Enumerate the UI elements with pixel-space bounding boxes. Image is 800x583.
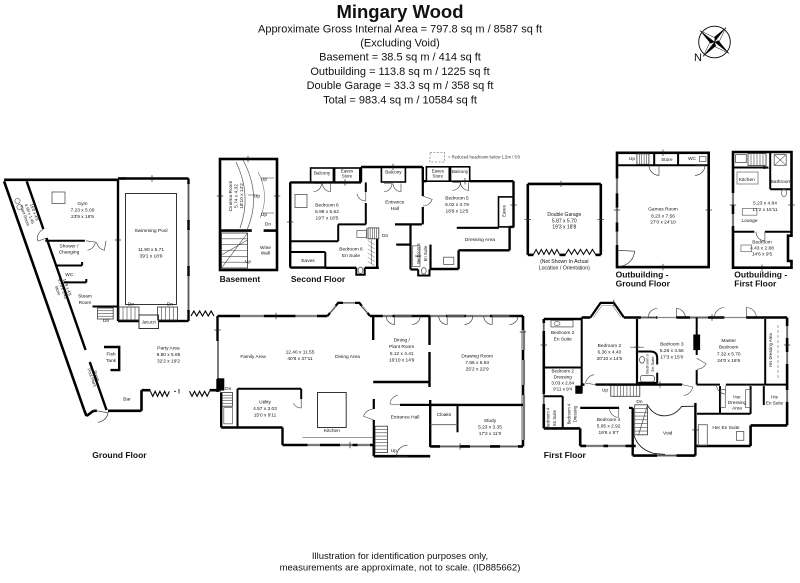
svg-text:17'2 x 11'0: 17'2 x 11'0 bbox=[479, 431, 502, 437]
svg-text:8.23 x 7.56: 8.23 x 7.56 bbox=[651, 213, 675, 219]
svg-text:Bedroom 4: Bedroom 4 bbox=[546, 407, 551, 428]
svg-text:Plant Room: Plant Room bbox=[389, 344, 414, 350]
svg-text:Up: Up bbox=[602, 388, 608, 394]
svg-text:Bedroom 2: Bedroom 2 bbox=[598, 343, 622, 349]
svg-text:12.40 x 11.55: 12.40 x 11.55 bbox=[286, 350, 315, 356]
svg-text:Dn: Dn bbox=[167, 302, 173, 308]
svg-text:Dn: Dn bbox=[636, 399, 642, 405]
svg-text:Kitchen: Kitchen bbox=[324, 428, 340, 434]
svg-text:En Suite: En Suite bbox=[552, 409, 557, 426]
svg-text:Cloaks: Cloaks bbox=[437, 412, 452, 418]
svg-text:6.02 x 3.79: 6.02 x 3.79 bbox=[445, 202, 469, 208]
svg-text:27'0 x 24'10: 27'0 x 24'10 bbox=[650, 220, 676, 226]
svg-text:Basement: Basement bbox=[220, 274, 261, 284]
svg-text:Her En Suite: Her En Suite bbox=[712, 425, 740, 431]
svg-text:Tank: Tank bbox=[106, 358, 117, 364]
svg-text:32'2 x 19'2: 32'2 x 19'2 bbox=[157, 359, 180, 365]
svg-text:Up: Up bbox=[261, 177, 267, 183]
svg-text:Location / Orientation): Location / Orientation) bbox=[539, 265, 590, 271]
svg-text:= Reduced headroom below 1.5m: = Reduced headroom below 1.5m / 5'0 bbox=[448, 155, 521, 160]
svg-text:5.26 x 4.56: 5.26 x 4.56 bbox=[660, 348, 684, 354]
svg-text:measurements are approximate,: measurements are approximate, not to sca… bbox=[280, 563, 521, 574]
svg-text:En Suite: En Suite bbox=[342, 253, 360, 259]
svg-text:Drawing Room: Drawing Room bbox=[461, 354, 493, 360]
svg-text:Shower /: Shower / bbox=[60, 244, 80, 250]
svg-text:Room: Room bbox=[79, 300, 92, 306]
svg-text:Store: Store bbox=[342, 174, 353, 179]
svg-text:En Suite: En Suite bbox=[766, 401, 784, 406]
svg-text:Bedroom: Bedroom bbox=[752, 240, 771, 246]
svg-text:5.23 x 3.35: 5.23 x 3.35 bbox=[478, 425, 502, 431]
svg-text:His Dressing Area: His Dressing Area bbox=[768, 333, 773, 367]
svg-text:Bedroom: Bedroom bbox=[719, 345, 738, 351]
svg-text:Bedroom 5: Bedroom 5 bbox=[445, 196, 469, 202]
svg-text:N: N bbox=[694, 52, 702, 64]
svg-text:7.66 x 6.93: 7.66 x 6.93 bbox=[465, 360, 489, 366]
svg-text:Bedroom 6: Bedroom 6 bbox=[339, 247, 363, 253]
svg-text:Steam: Steam bbox=[78, 294, 92, 300]
svg-text:Bedroom 4: Bedroom 4 bbox=[567, 403, 572, 424]
svg-text:Ground Floor: Ground Floor bbox=[616, 279, 671, 289]
svg-text:First Floor: First Floor bbox=[544, 450, 587, 460]
svg-text:Jacuzzi: Jacuzzi bbox=[142, 320, 156, 325]
svg-text:Lounge: Lounge bbox=[741, 218, 757, 224]
svg-text:Gym: Gym bbox=[77, 201, 87, 207]
svg-text:5.12 x 4.41: 5.12 x 4.41 bbox=[390, 351, 414, 357]
svg-text:7.32 x 5.70: 7.32 x 5.70 bbox=[717, 352, 741, 358]
svg-text:11.90 x 5.71: 11.90 x 5.71 bbox=[138, 247, 164, 253]
svg-text:24'0 x 16'6: 24'0 x 16'6 bbox=[717, 358, 740, 364]
svg-text:3.03 x 2.84: 3.03 x 2.84 bbox=[551, 381, 574, 386]
svg-text:17'3 x 15'0: 17'3 x 15'0 bbox=[660, 355, 683, 361]
svg-text:Store: Store bbox=[433, 174, 444, 179]
svg-text:Kitchen: Kitchen bbox=[739, 177, 755, 183]
svg-text:Her: Her bbox=[733, 395, 741, 400]
svg-text:4.57 x 3.03: 4.57 x 3.03 bbox=[253, 406, 277, 412]
svg-text:Bedroom 2: Bedroom 2 bbox=[551, 369, 574, 374]
svg-text:5.23 x 4.84: 5.23 x 4.84 bbox=[753, 201, 777, 207]
svg-text:Utility: Utility bbox=[259, 400, 271, 406]
svg-text:Dn: Dn bbox=[763, 165, 769, 171]
svg-text:39'1 x 18'9: 39'1 x 18'9 bbox=[140, 254, 163, 260]
svg-text:Hall: Hall bbox=[391, 206, 399, 212]
svg-text:19'6 x 9'7: 19'6 x 9'7 bbox=[598, 430, 619, 436]
svg-text:Dressing: Dressing bbox=[728, 400, 747, 405]
svg-text:Wall: Wall bbox=[261, 251, 270, 257]
svg-text:Cinema Room: Cinema Room bbox=[228, 181, 234, 212]
svg-text:Eaves: Eaves bbox=[502, 205, 507, 217]
svg-text:15'0 x 9'11: 15'0 x 9'11 bbox=[254, 413, 277, 419]
svg-text:Balcony: Balcony bbox=[314, 171, 331, 176]
svg-text:14'6 x 9'5: 14'6 x 9'5 bbox=[752, 252, 773, 258]
svg-text:Up: Up bbox=[261, 212, 267, 218]
svg-text:Entrance Hall: Entrance Hall bbox=[391, 415, 420, 421]
svg-text:Master: Master bbox=[721, 338, 736, 344]
svg-text:Dn: Dn bbox=[225, 386, 231, 392]
svg-text:Bedroom 3: Bedroom 3 bbox=[645, 353, 650, 373]
svg-text:17'2 x 15'11: 17'2 x 15'11 bbox=[752, 207, 778, 213]
svg-text:Fish: Fish bbox=[106, 352, 115, 358]
svg-text:4.43 x 2.88: 4.43 x 2.88 bbox=[750, 246, 774, 252]
svg-text:5.74 x 4.32: 5.74 x 4.32 bbox=[234, 184, 240, 208]
svg-text:(Not Shown In Actual: (Not Shown In Actual bbox=[540, 259, 588, 265]
svg-text:Outbuilding = 113.8 sq m / 122: Outbuilding = 113.8 sq m / 1225 sq ft bbox=[310, 66, 489, 78]
svg-text:Dining Area: Dining Area bbox=[335, 354, 360, 360]
svg-text:Study: Study bbox=[484, 418, 497, 424]
svg-text:Party Area: Party Area bbox=[157, 346, 180, 352]
svg-text:6.36 x 4.40: 6.36 x 4.40 bbox=[598, 350, 622, 356]
svg-text:Double Garage = 33.3 sq m / 35: Double Garage = 33.3 sq m / 358 sq ft bbox=[307, 80, 494, 92]
svg-text:Up: Up bbox=[245, 259, 251, 265]
svg-text:Void: Void bbox=[663, 431, 673, 437]
svg-text:Area: Area bbox=[732, 406, 742, 411]
svg-text:Store: Store bbox=[661, 157, 673, 163]
svg-text:18'9 x 12'5: 18'9 x 12'5 bbox=[446, 209, 469, 215]
svg-text:9.80 x 5.85: 9.80 x 5.85 bbox=[157, 352, 181, 358]
svg-text:Bar: Bar bbox=[123, 397, 131, 403]
svg-text:25'2 x 22'9: 25'2 x 22'9 bbox=[466, 367, 489, 373]
svg-text:19'7 x 18'5: 19'7 x 18'5 bbox=[316, 216, 339, 222]
svg-text:23'9 x 16'5: 23'9 x 16'5 bbox=[71, 214, 94, 220]
svg-text:Dn: Dn bbox=[128, 302, 134, 308]
svg-text:5.98 x 5.62: 5.98 x 5.62 bbox=[315, 209, 339, 215]
svg-text:9'11 x 9'4: 9'11 x 9'4 bbox=[553, 387, 572, 392]
svg-text:16'10 x 14'9: 16'10 x 14'9 bbox=[389, 358, 415, 364]
svg-text:Total = 983.4 sq m / 10584 sq: Total = 983.4 sq m / 10584 sq ft bbox=[323, 95, 477, 107]
svg-text:Swimming Pool: Swimming Pool bbox=[134, 228, 167, 234]
svg-text:First Floor: First Floor bbox=[734, 279, 777, 289]
svg-text:WC: WC bbox=[65, 272, 74, 278]
svg-text:Mingary Wood: Mingary Wood bbox=[336, 1, 463, 22]
svg-text:Up: Up bbox=[391, 448, 397, 454]
svg-text:En Suite: En Suite bbox=[650, 356, 655, 372]
svg-text:Entrance: Entrance bbox=[385, 200, 405, 206]
svg-text:Bedroom 4: Bedroom 4 bbox=[597, 417, 621, 423]
svg-text:Balcony: Balcony bbox=[385, 170, 402, 175]
svg-text:Up: Up bbox=[254, 194, 260, 200]
svg-text:Dressing Area: Dressing Area bbox=[465, 237, 495, 243]
svg-text:(Excluding Void): (Excluding Void) bbox=[360, 38, 440, 50]
svg-text:Bedroom 6: Bedroom 6 bbox=[315, 203, 339, 209]
svg-text:Basement = 38.5 sq m / 414 sq: Basement = 38.5 sq m / 414 sq ft bbox=[319, 52, 481, 64]
svg-text:Dressing: Dressing bbox=[554, 375, 573, 380]
svg-text:Illustration for identificatio: Illustration for identification purposes… bbox=[312, 551, 488, 562]
svg-text:Wine: Wine bbox=[260, 245, 271, 251]
svg-text:Dn: Dn bbox=[382, 233, 388, 239]
svg-text:Approximate Gross Internal Are: Approximate Gross Internal Area = 797.8 … bbox=[258, 24, 542, 36]
svg-text:Family Area: Family Area bbox=[240, 354, 266, 360]
svg-text:Changing: Changing bbox=[59, 250, 80, 256]
svg-text:19'3 x 18'8: 19'3 x 18'8 bbox=[552, 224, 576, 230]
svg-text:7.23 x 5.00: 7.23 x 5.00 bbox=[71, 208, 95, 214]
svg-text:Double Garage: Double Garage bbox=[547, 212, 581, 218]
svg-text:Up: Up bbox=[629, 156, 635, 162]
svg-text:Dn: Dn bbox=[103, 318, 109, 324]
svg-text:Dining /: Dining / bbox=[394, 338, 411, 344]
svg-text:Bedroom 2: Bedroom 2 bbox=[551, 330, 575, 336]
svg-text:Bedroom 5: Bedroom 5 bbox=[416, 243, 421, 264]
svg-text:Balcony: Balcony bbox=[452, 169, 469, 174]
svg-text:Bedroom 3: Bedroom 3 bbox=[660, 342, 684, 348]
svg-text:40'8 x 37'11: 40'8 x 37'11 bbox=[287, 356, 313, 362]
svg-text:His: His bbox=[771, 395, 778, 400]
svg-text:Second Floor: Second Floor bbox=[291, 274, 346, 284]
svg-text:Eaves: Eaves bbox=[301, 258, 315, 264]
svg-text:En Suite: En Suite bbox=[554, 337, 572, 343]
svg-text:20'10 x 14'5: 20'10 x 14'5 bbox=[597, 356, 623, 362]
svg-text:En Suite: En Suite bbox=[423, 245, 428, 262]
svg-text:Dressing: Dressing bbox=[573, 405, 578, 422]
svg-text:Dn: Dn bbox=[265, 222, 271, 228]
svg-text:Bathroom: Bathroom bbox=[771, 179, 792, 185]
svg-text:5.95 x 2.92: 5.95 x 2.92 bbox=[597, 424, 621, 430]
svg-text:Ground Floor: Ground Floor bbox=[92, 450, 147, 460]
svg-text:18'10 x 14'2: 18'10 x 14'2 bbox=[239, 183, 245, 209]
svg-text:WC: WC bbox=[688, 156, 697, 162]
svg-text:Games Room: Games Room bbox=[648, 207, 678, 213]
